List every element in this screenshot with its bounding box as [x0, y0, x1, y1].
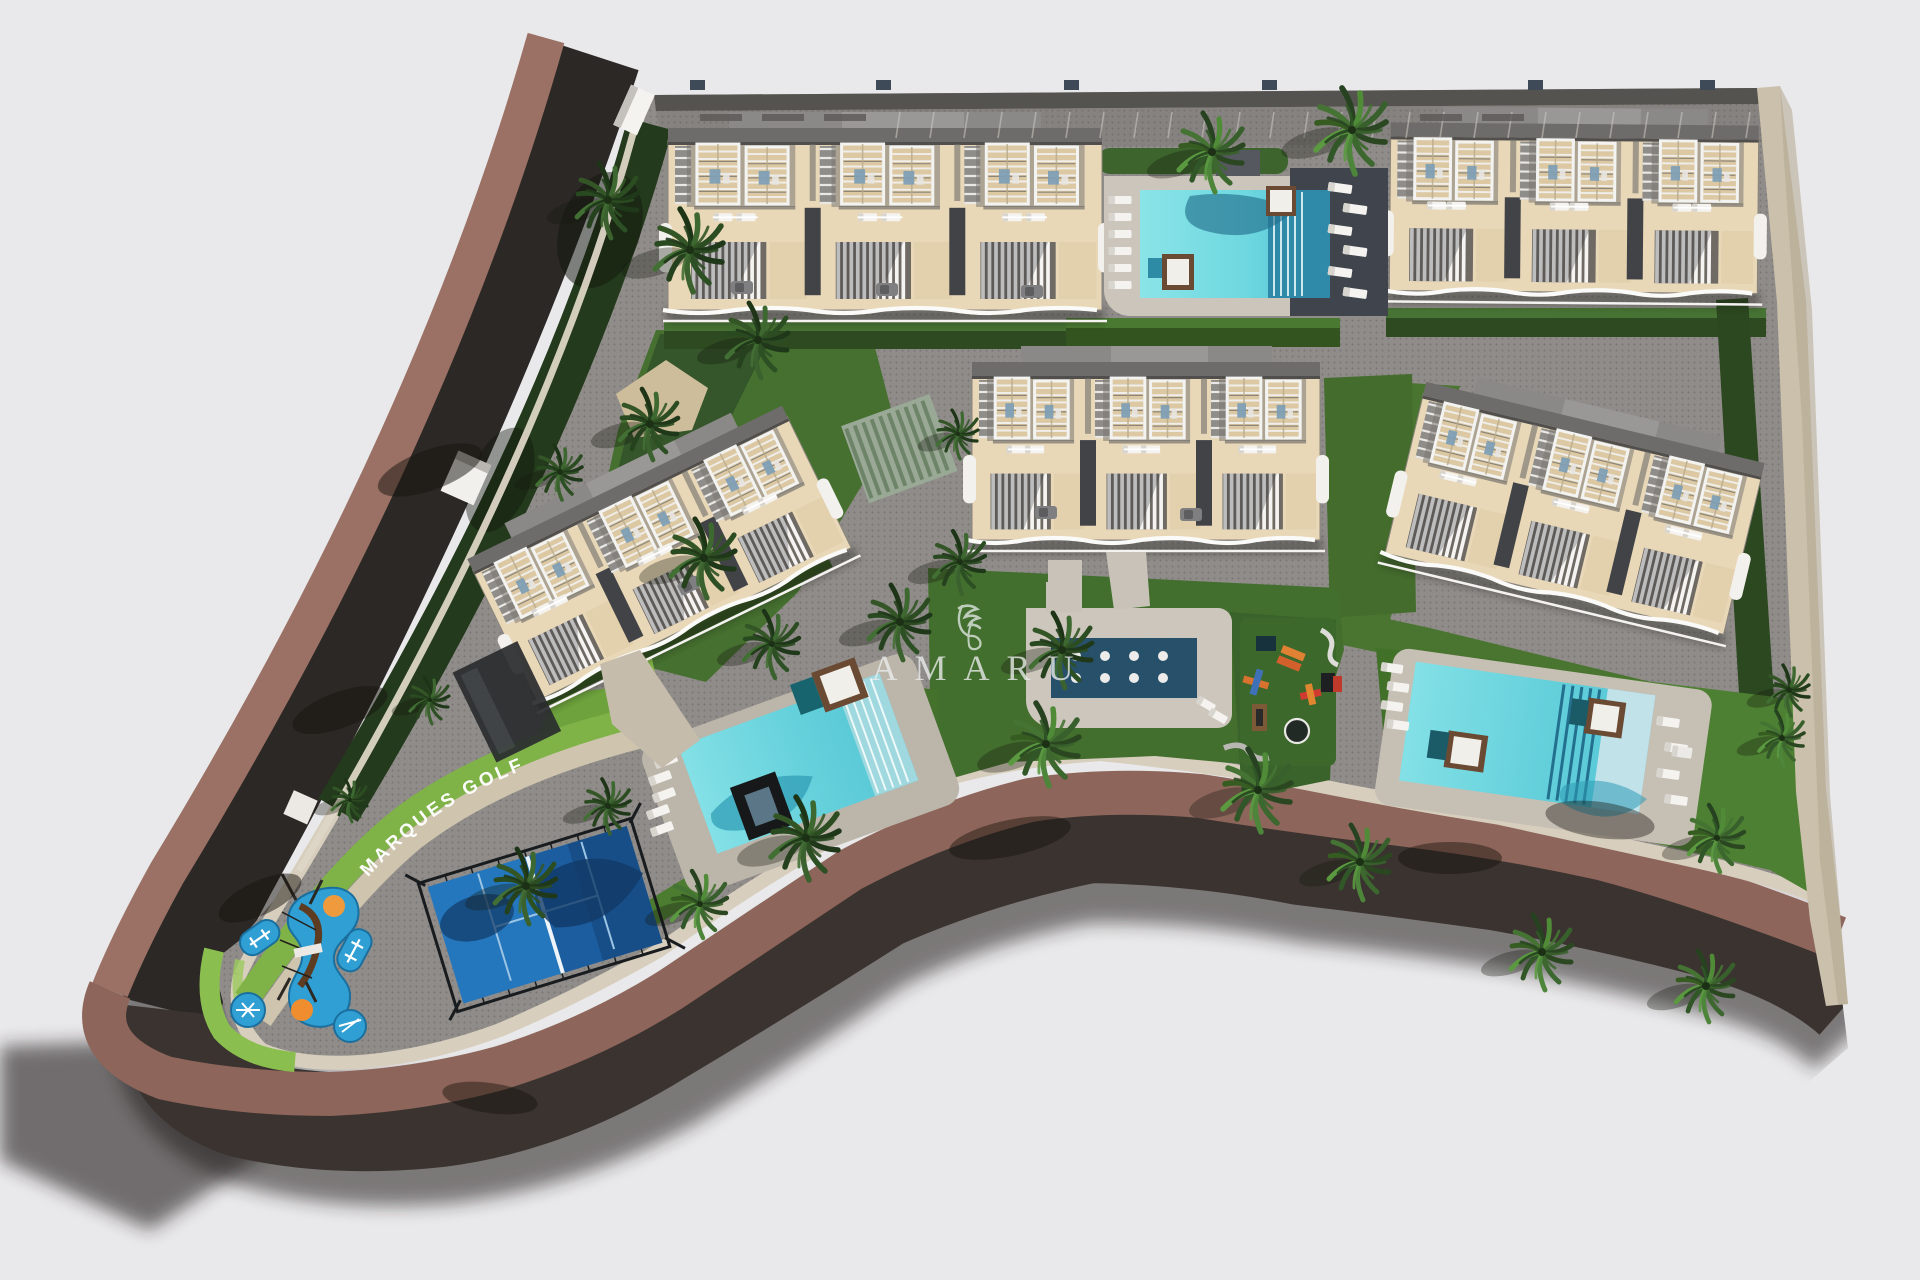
- svg-text:AMARU: AMARU: [871, 648, 1090, 688]
